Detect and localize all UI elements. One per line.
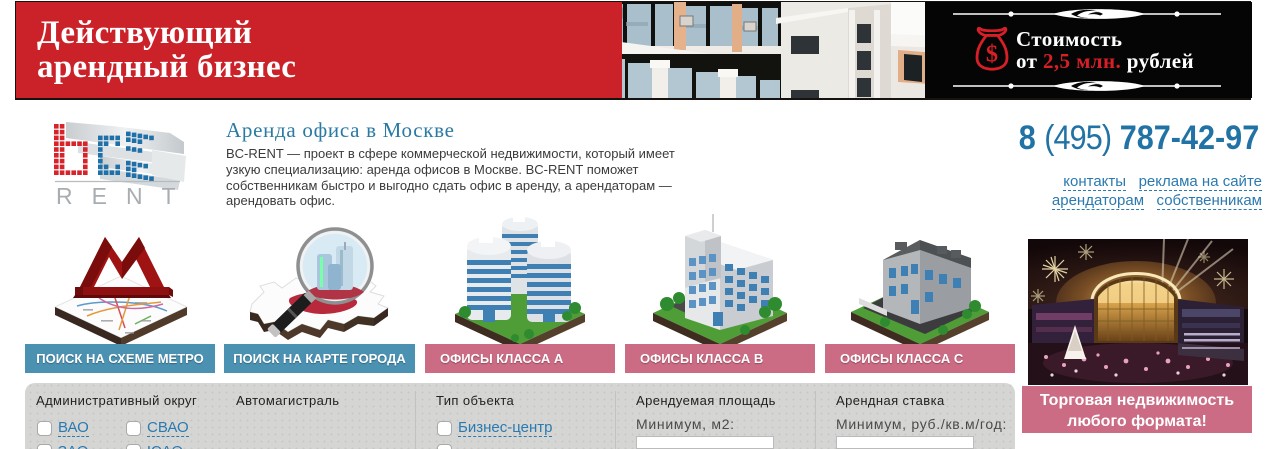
svg-text:$: $ <box>986 41 998 68</box>
svg-text:RENT: RENT <box>56 183 192 206</box>
